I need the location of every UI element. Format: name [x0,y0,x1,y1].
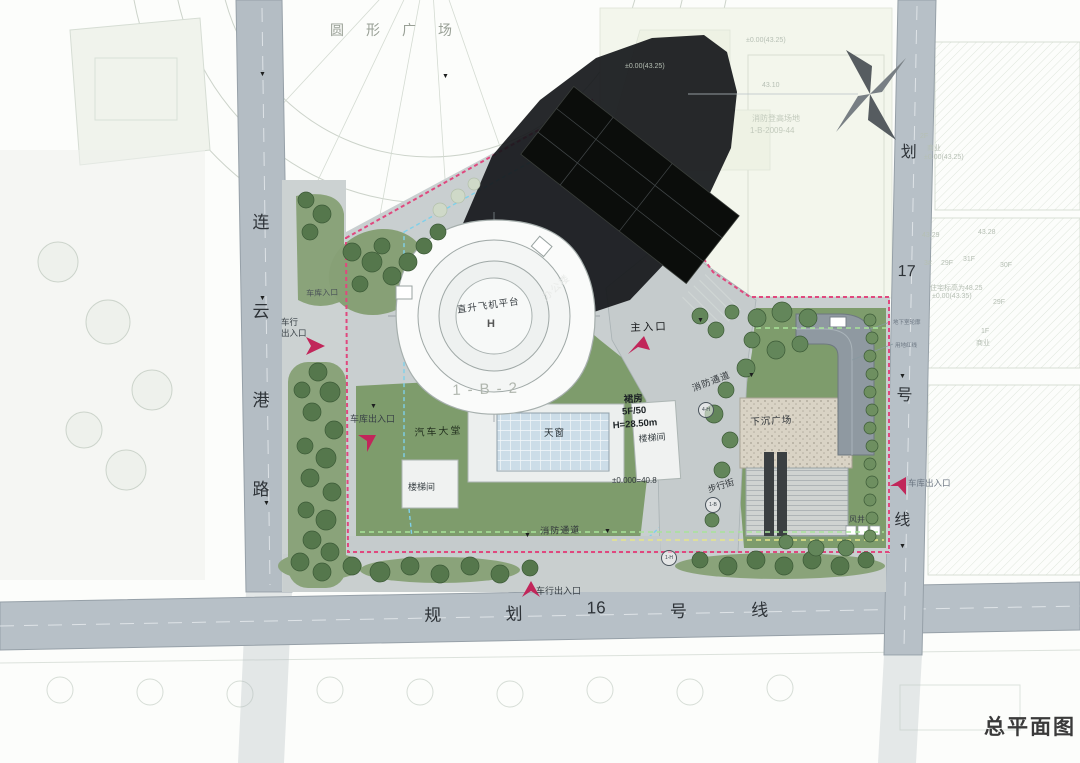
svg-text:▼: ▼ [604,528,611,535]
fire-lane-label-2: 消防通道 [540,523,580,537]
ctx-elev-d: ±0.00(43.35) [932,293,972,300]
page-title: 总平面图 [984,711,1076,741]
ctx-blk: 3# [924,260,932,267]
redline-note: 用地红线 [895,341,917,349]
context-buildings-topleft [0,18,210,580]
car-lobby-label: 汽车大堂 [414,421,463,438]
axis-marker-text: 1-B [709,502,717,508]
skylight-grid [497,413,609,471]
site-plan-drawing: ▼▼▼ ▼▼▼ ▼▼▼ ▼▼ [0,0,1080,763]
garage-entrance-west-label: 车库出入口 [350,412,395,425]
vehicle-entrance-south-label: 车行出入口 [536,584,581,597]
svg-text:▼: ▼ [697,317,704,324]
parcel-id-label: 1-B-2 [452,379,524,398]
ctx-f31: 31F [963,256,975,263]
stairwell-b-label: 楼梯间 [408,480,435,493]
road-char: 划 [505,599,522,624]
road-char: 17 [898,263,916,281]
svg-text:▼: ▼ [370,403,377,410]
ctx-f29a: 29F [941,260,953,267]
ctx-biz-floor: 2F [920,133,928,140]
tower-stub [396,286,412,299]
ctx-f1: 1F [981,328,989,335]
ctx-spot-a: 43.10 [762,82,780,89]
ctx-spot-b: 43.29 [922,232,940,239]
ctx-f29b: 29F [993,299,1005,306]
sunken-plaza-label: 下沉广场 [750,412,793,428]
svg-text:▼: ▼ [442,73,449,80]
ctx-biz-b: 商业 [976,338,990,348]
svg-text:▼: ▼ [524,532,531,539]
svg-text:▼: ▼ [748,372,755,379]
ctx-spot-c: 43.28 [978,229,996,236]
vehicle-entrance-west-label: 车行 出入口 [281,317,307,339]
road-char: 线 [894,506,910,530]
ctx-biz-a: 商业 [927,143,941,153]
road-char: 号 [670,597,687,622]
road-char: 路 [253,475,270,500]
skylight-label: 天窗 [544,425,565,439]
elevation-label: ±0.000=40.8 [612,476,657,485]
helipad-mark: H [487,318,495,330]
ctx-elev-b: ±0.00(43.25) [746,37,786,44]
circular-plaza-label: 圆形广场 [330,20,474,40]
axis-marker-1: 4-H [698,402,714,418]
escalator-strip [777,452,787,536]
ramp-hut [830,317,846,327]
garage-exit-east-label: 车库出入口 [908,477,951,489]
grand-stairs [746,468,848,536]
road-char: 规 [424,601,441,626]
wind-shaft-label: 风井 [849,514,865,525]
axis-marker-3: 1-H [661,550,677,566]
axis-marker-text: 1-H [665,555,673,561]
ctx-res-note: 住宅标高为48.25 [930,283,983,293]
vehicle-entrance-west-line2: 出入口 [281,328,307,339]
escalator-strip [764,452,774,536]
basement-note: 地下室轮廓 [893,318,921,326]
road-char: 16 [587,598,606,623]
axis-marker-2: 1-B [705,497,721,513]
svg-text:▼: ▼ [259,71,266,78]
site-plan-canvas: ▼▼▼ ▼▼▼ ▼▼▼ ▼▼ 连 云 港 路 规 划 16 号 线 划 17 号… [0,0,1080,763]
main-entrance-label: 主入口 [630,319,668,335]
road-name-lianyungang: 连 云 港 路 [250,208,272,500]
garage-entrance-top-label: 车库入口 [306,287,338,299]
axis-marker-text: 4-H [702,407,710,413]
ctx-f30: 30F [1000,262,1012,269]
road-char: 港 [253,386,270,411]
ctx-parcel-ref: 1-B-2009-44 [750,126,794,135]
stairwell-a-label: 楼梯间 [638,430,666,445]
road-char: 划 [901,138,917,162]
svg-text:▼: ▼ [899,543,906,550]
podium-label: 裙房 5F/50 H=28.50m [602,392,666,433]
road-char: 连 [253,208,270,233]
ctx-elev-c: ±0.00(43.25) [924,154,964,161]
vehicle-entrance-west-line1: 车行 [281,317,307,328]
svg-text:▼: ▼ [263,500,270,507]
road-char: 号 [896,381,912,405]
road-char: 线 [751,596,768,621]
road-char: 云 [253,297,270,322]
ctx-fire-site: 消防登高场地 [752,113,800,124]
ctx-elev-a: ±0.00(43.25) [625,63,665,70]
context-buildings-right [922,42,1080,575]
